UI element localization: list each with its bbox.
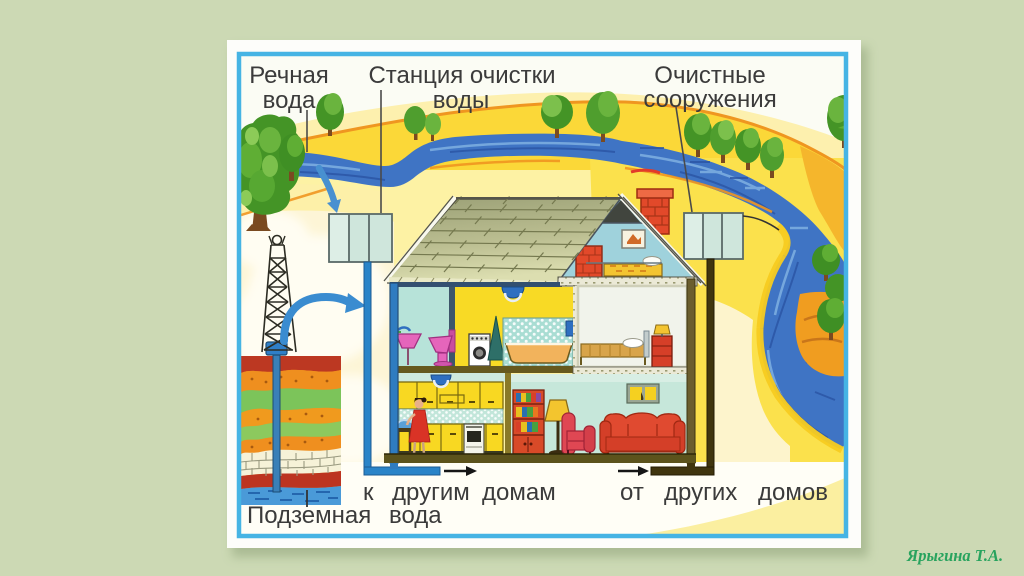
svg-text:вода: вода	[389, 502, 442, 529]
svg-text:сооружения: сооружения	[643, 86, 776, 113]
svg-text:воды: воды	[433, 87, 490, 114]
svg-text:Подземная: Подземная	[247, 502, 371, 529]
svg-text:от: от	[620, 479, 644, 506]
svg-text:Очистные: Очистные	[654, 62, 765, 89]
svg-text:домов: домов	[758, 479, 828, 506]
svg-text:домам: домам	[482, 479, 556, 506]
svg-text:Речная: Речная	[249, 62, 329, 89]
svg-text:вода: вода	[263, 87, 316, 114]
svg-text:Станция очистки: Станция очистки	[368, 62, 555, 89]
svg-text:Ярыгина Т.А.: Ярыгина Т.А.	[906, 546, 1003, 565]
svg-text:других: других	[664, 479, 737, 506]
